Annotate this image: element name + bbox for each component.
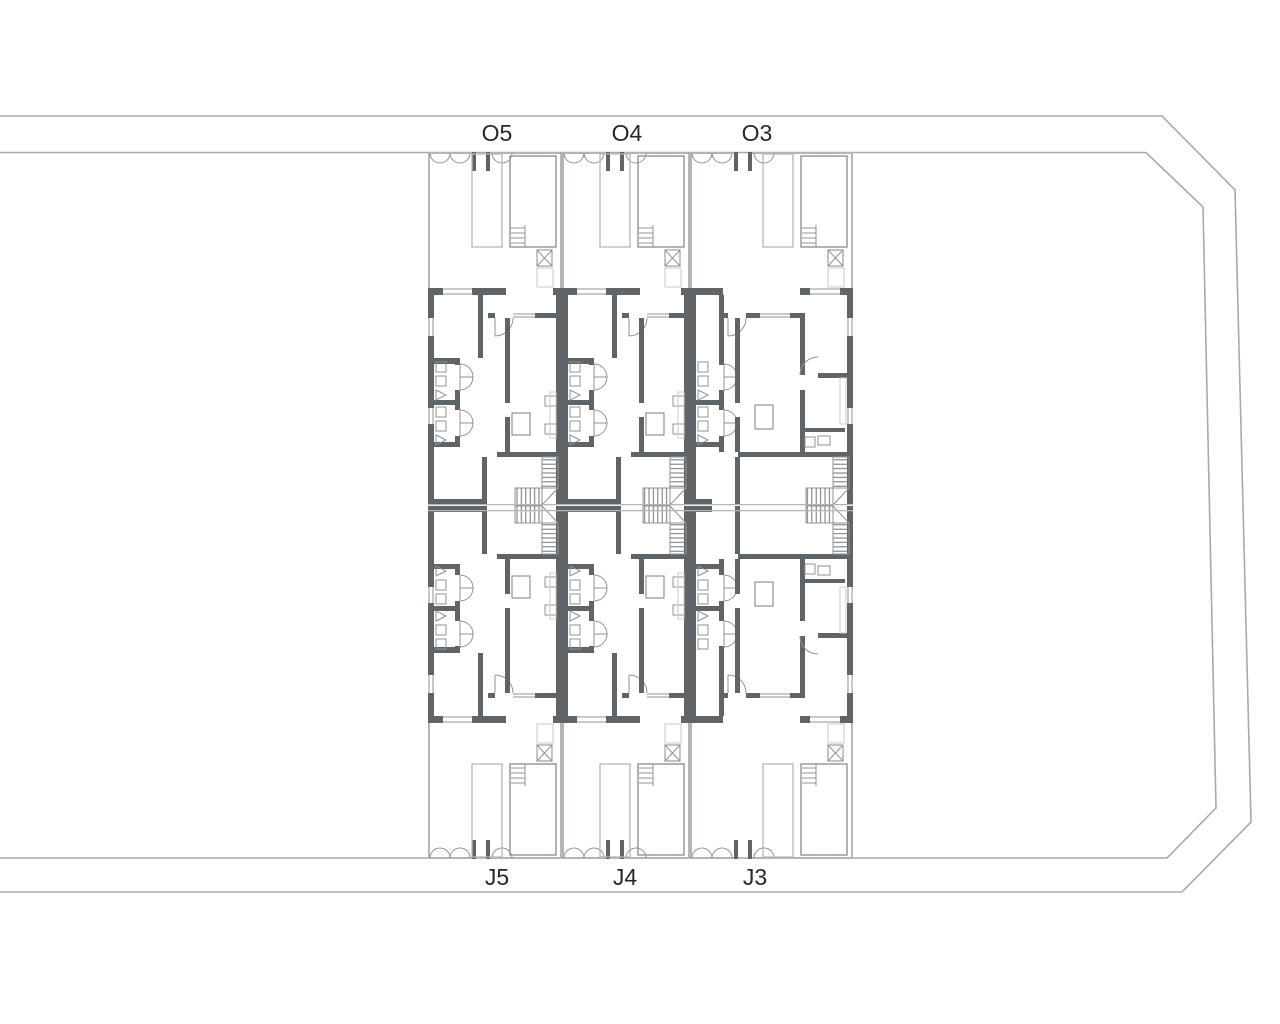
garden-O3 [690, 152, 853, 289]
garden-J4 [562, 722, 690, 859]
garden-J3 [690, 722, 853, 859]
street-label-O4: O4 [612, 120, 643, 146]
street-label-J3: J3 [743, 864, 767, 890]
street-label-O5: O5 [482, 120, 513, 146]
street-label-J4: J4 [613, 864, 638, 890]
street-label-J5: J5 [485, 864, 509, 890]
house-O3 [690, 288, 853, 505]
house-J4 [562, 506, 690, 723]
party-wall-band [428, 505, 853, 511]
street-side-O-units [428, 152, 853, 505]
site-boundary-inner [0, 153, 1216, 859]
floor-plan-page: O5 O4 O3 J5 J4 J3 [0, 0, 1280, 1024]
street-label-O3: O3 [742, 120, 773, 146]
housing-block [428, 152, 853, 859]
house-O4 [562, 288, 690, 505]
house-J3 [690, 506, 853, 723]
house-J5 [428, 506, 562, 723]
house-O5 [428, 288, 562, 505]
garden-O4 [562, 152, 690, 289]
garden-J5 [428, 722, 562, 859]
street-side-J-units [428, 506, 853, 859]
floor-plan-canvas: O5 O4 O3 J5 J4 J3 [0, 0, 1280, 1024]
garden-O5 [428, 152, 562, 289]
